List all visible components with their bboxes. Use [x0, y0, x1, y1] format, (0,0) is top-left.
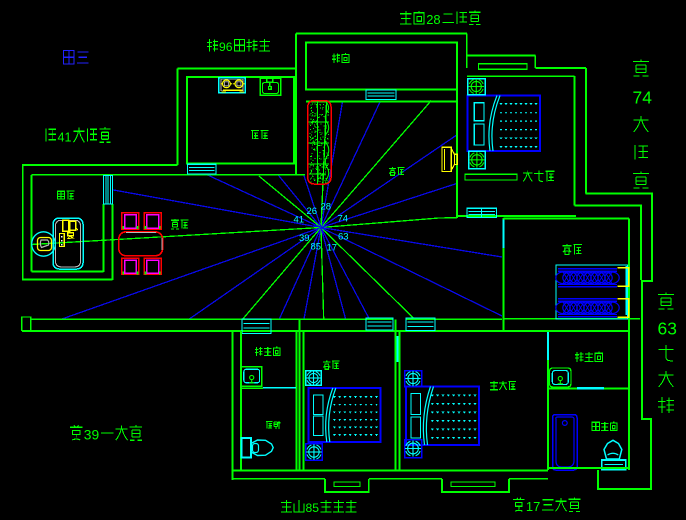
svg-text:85: 85 [306, 501, 320, 515]
svg-text:41: 41 [58, 130, 72, 145]
svg-text:17: 17 [327, 243, 338, 254]
svg-text:26: 26 [307, 206, 318, 217]
svg-text:85: 85 [311, 242, 322, 253]
svg-text:41: 41 [294, 215, 305, 226]
svg-text:74: 74 [338, 214, 349, 225]
svg-text:63: 63 [338, 232, 349, 243]
svg-text:28: 28 [426, 12, 440, 27]
svg-text:39: 39 [299, 233, 310, 244]
svg-text:17: 17 [526, 499, 540, 514]
svg-text:28: 28 [321, 202, 332, 213]
svg-text:63: 63 [658, 319, 677, 339]
svg-text:96: 96 [219, 40, 233, 54]
svg-text:39: 39 [84, 428, 100, 444]
svg-text:74: 74 [633, 88, 652, 108]
